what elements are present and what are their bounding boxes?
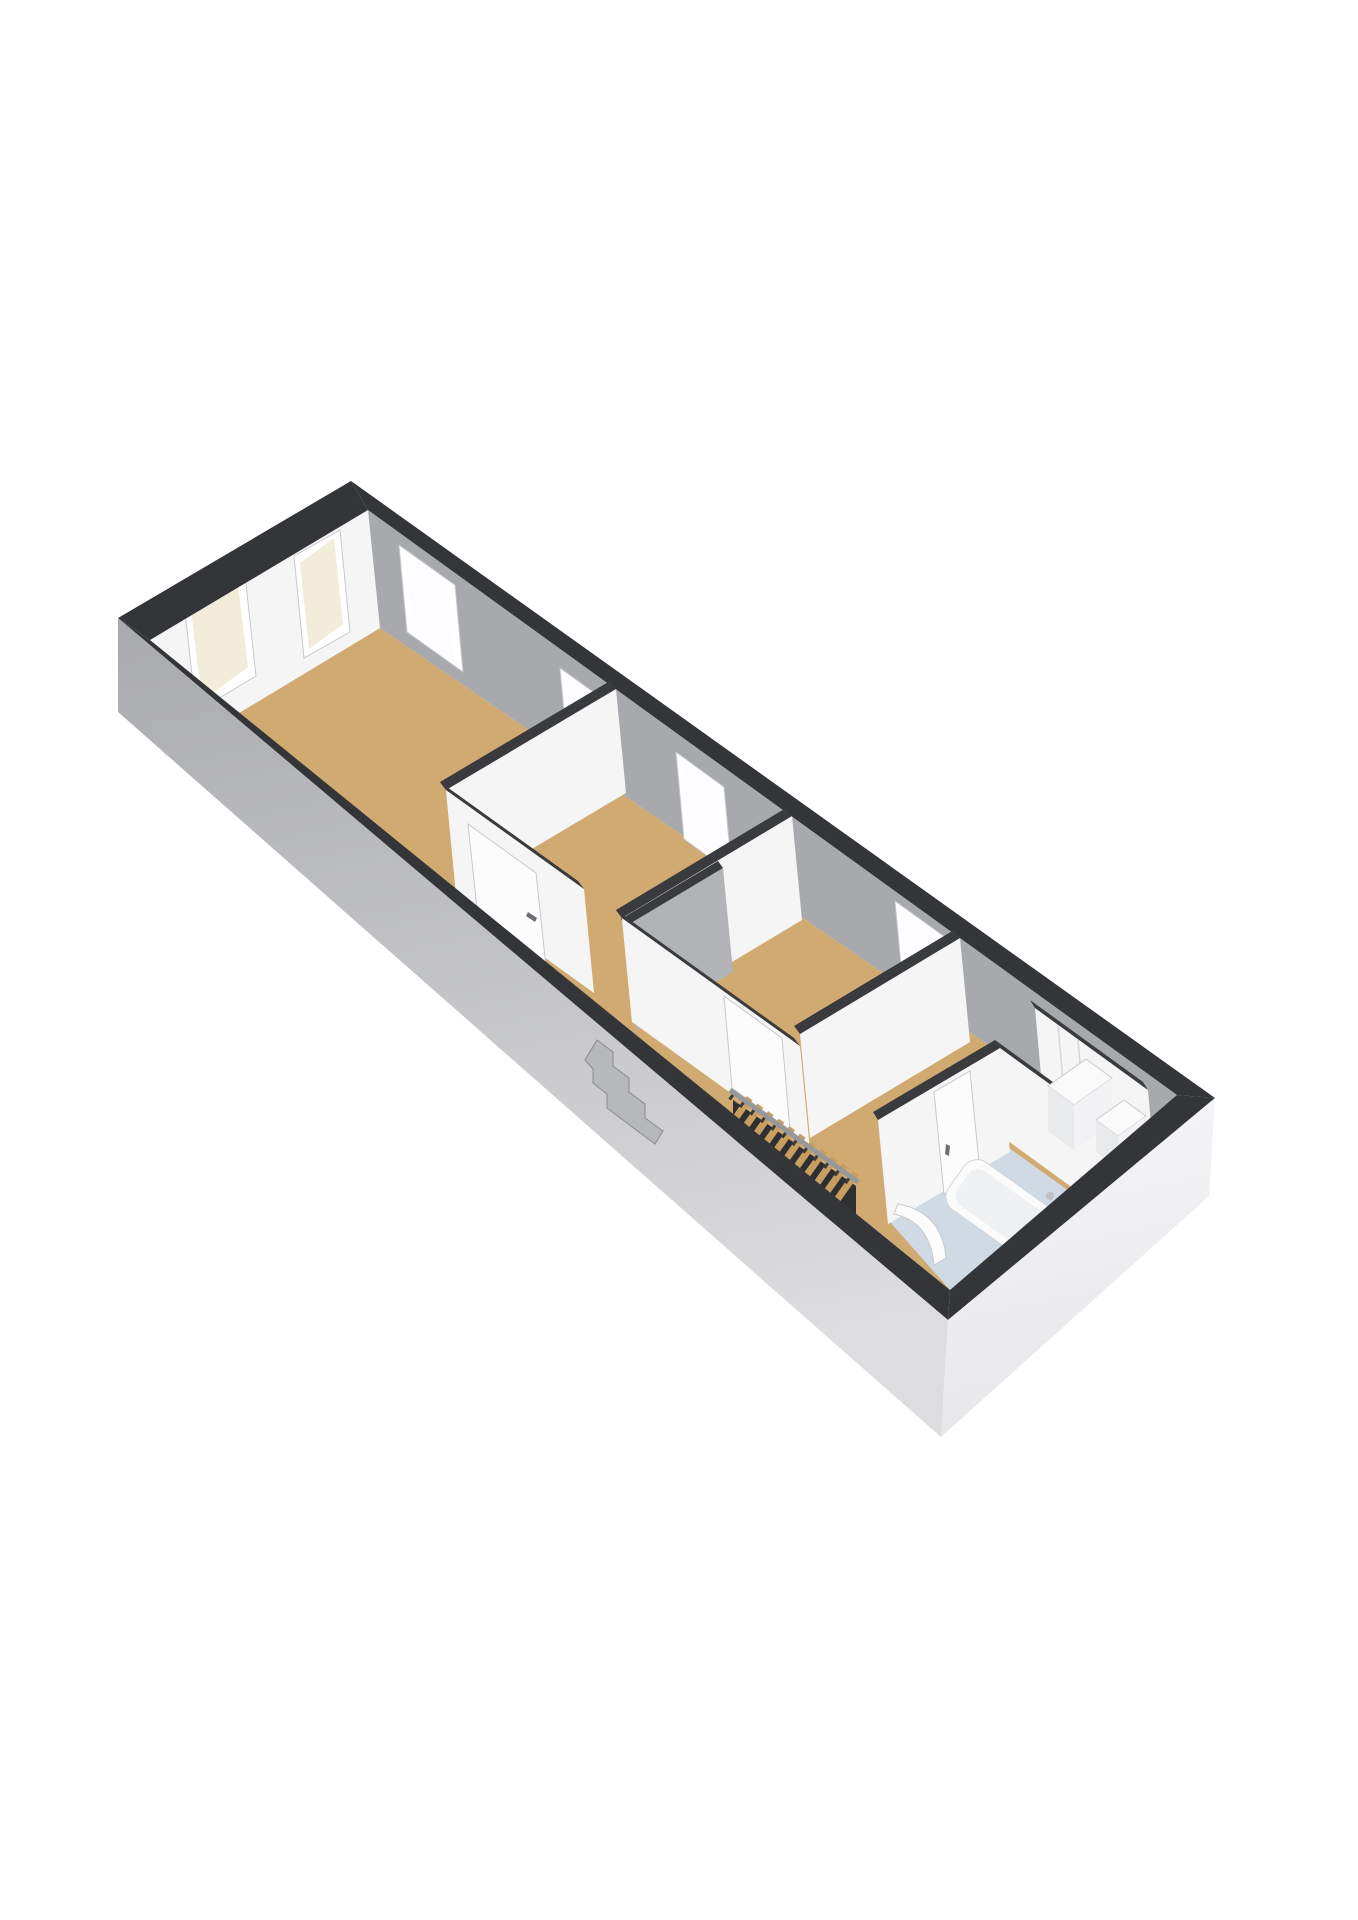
floor-plan-canvas	[0, 0, 1358, 1920]
bathtub-faucet	[1046, 1192, 1054, 1200]
floor-plan-3d-render	[0, 0, 1358, 1920]
